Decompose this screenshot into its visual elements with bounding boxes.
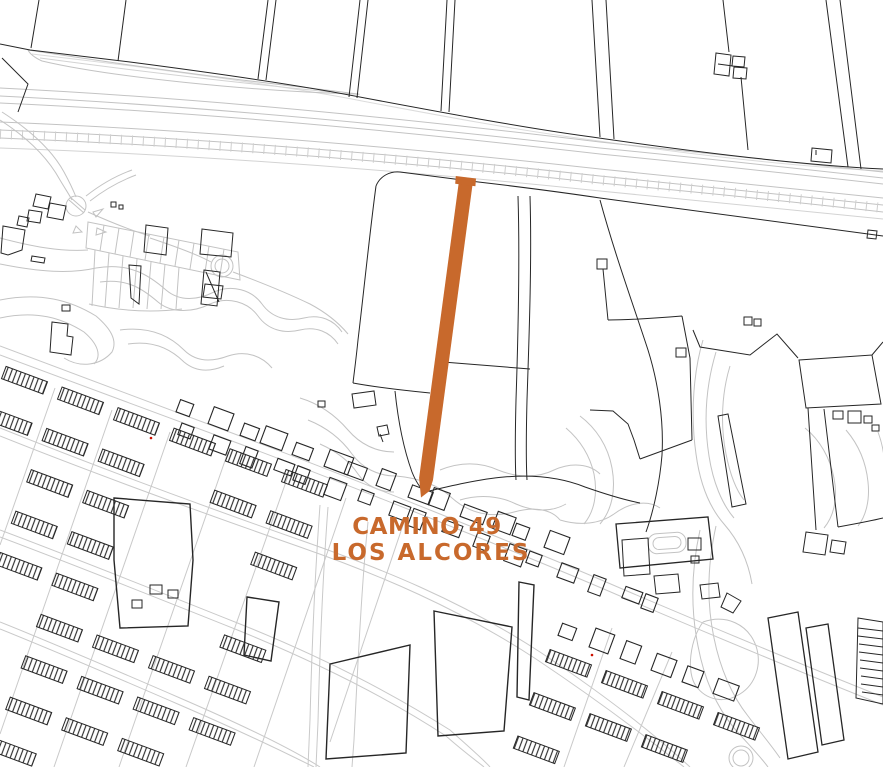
housing-row — [62, 718, 108, 746]
house-footprint — [651, 653, 677, 677]
housing-row — [6, 697, 52, 725]
housing-row — [0, 739, 36, 767]
housing-row — [189, 718, 235, 746]
building-footprints-top — [714, 53, 877, 239]
housing-row — [11, 511, 57, 539]
house-footprint — [512, 523, 530, 540]
house-footprint — [274, 458, 295, 476]
industrial-buildings — [768, 532, 883, 759]
housing-row — [67, 532, 113, 560]
housing-row — [98, 449, 144, 477]
stadium-field — [647, 532, 686, 555]
housing-row — [585, 714, 631, 742]
housing-row — [210, 490, 256, 518]
house-footprint — [682, 666, 704, 688]
housing-row — [83, 490, 129, 518]
housing-row — [27, 470, 73, 498]
housing-row — [641, 735, 687, 763]
highlight-route: CAMINO 49 LOS ALCORES — [332, 176, 531, 566]
house-footprint — [558, 623, 577, 640]
house-footprint — [358, 489, 374, 505]
housing-row — [118, 738, 164, 766]
housing-row — [205, 676, 251, 704]
housing-row — [546, 650, 592, 678]
housing-row — [149, 656, 195, 684]
house-footprint — [208, 407, 234, 431]
housing-row — [251, 552, 297, 580]
housing-row — [37, 614, 83, 642]
house-footprint — [544, 530, 570, 554]
house-footprint — [240, 423, 260, 441]
route-cap — [455, 176, 476, 186]
motorway-band — [0, 50, 883, 219]
railway-ties — [0, 134, 883, 208]
house-footprint — [176, 400, 194, 417]
housing-row — [266, 511, 312, 539]
route-line — [419, 180, 473, 498]
housing-row — [52, 573, 98, 601]
housing-row — [21, 656, 67, 684]
map-canvas: CAMINO 49 LOS ALCORES — [0, 0, 883, 767]
route-label-line1: CAMINO 49 — [352, 514, 501, 540]
housing-row — [42, 428, 88, 456]
house-footprint — [713, 678, 739, 701]
housing-row — [0, 408, 32, 436]
house-footprint — [260, 426, 288, 451]
housing-row — [282, 470, 328, 498]
housing-row — [77, 676, 123, 704]
stadium-block — [616, 517, 741, 613]
house-footprint — [292, 442, 314, 461]
cadastral-map: CAMINO 49 LOS ALCORES — [0, 0, 883, 767]
house-footprint — [620, 641, 642, 665]
housing-row — [714, 713, 760, 741]
housing-row — [0, 553, 42, 581]
housing-row — [513, 736, 559, 764]
housing-row — [529, 693, 575, 721]
housing-row — [602, 671, 648, 699]
house-footprint — [622, 586, 643, 604]
housing-row — [93, 635, 139, 663]
route-label-line2: LOS ALCORES — [332, 540, 531, 566]
housing-row — [658, 692, 704, 720]
house-footprint — [376, 469, 396, 491]
